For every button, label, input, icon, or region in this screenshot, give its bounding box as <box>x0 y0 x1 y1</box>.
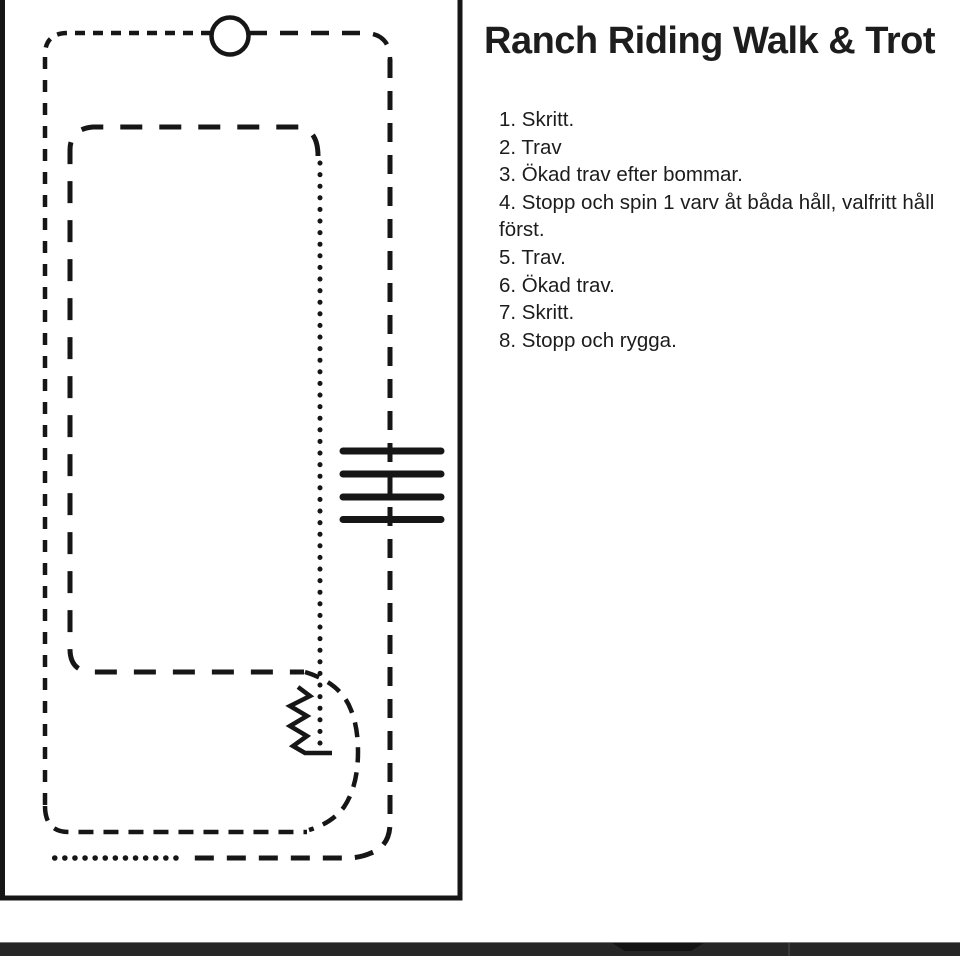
trot-path-top-right <box>249 33 390 59</box>
instruction-item: 7. Skritt. <box>499 299 951 327</box>
start-marker-circle <box>212 18 249 55</box>
instruction-item: 1. Skritt. <box>499 106 951 134</box>
trot-path-bottom <box>45 806 307 832</box>
instruction-item: 4. Stopp och spin 1 varv åt båda håll, v… <box>499 189 951 244</box>
instruction-item: 3. Ökad trav efter bommar. <box>499 161 951 189</box>
instructions-list: 1. Skritt. 2. Trav 3. Ökad trav efter bo… <box>499 106 951 354</box>
pattern-ink-group <box>3 0 461 898</box>
page-title: Ranch Riding Walk & Trot <box>484 20 954 64</box>
pattern-diagram <box>0 0 470 915</box>
instruction-item: 2. Trav <box>499 134 951 162</box>
instruction-item: 6. Ökad trav. <box>499 272 951 300</box>
trot-path-right <box>184 59 390 858</box>
bottom-bar <box>0 942 960 956</box>
instruction-item: 8. Stopp och rygga. <box>499 327 951 355</box>
page: Ranch Riding Walk & Trot 1. Skritt. 2. T… <box>0 0 960 956</box>
instruction-item: 5. Trav. <box>499 244 951 272</box>
trot-path-inner-rect <box>70 127 318 672</box>
backup-zigzag <box>290 687 332 753</box>
pattern-diagram-panel <box>0 0 470 915</box>
bar-seam <box>788 943 790 956</box>
walk-path-top-left <box>45 33 211 55</box>
bar-notch <box>612 943 704 951</box>
